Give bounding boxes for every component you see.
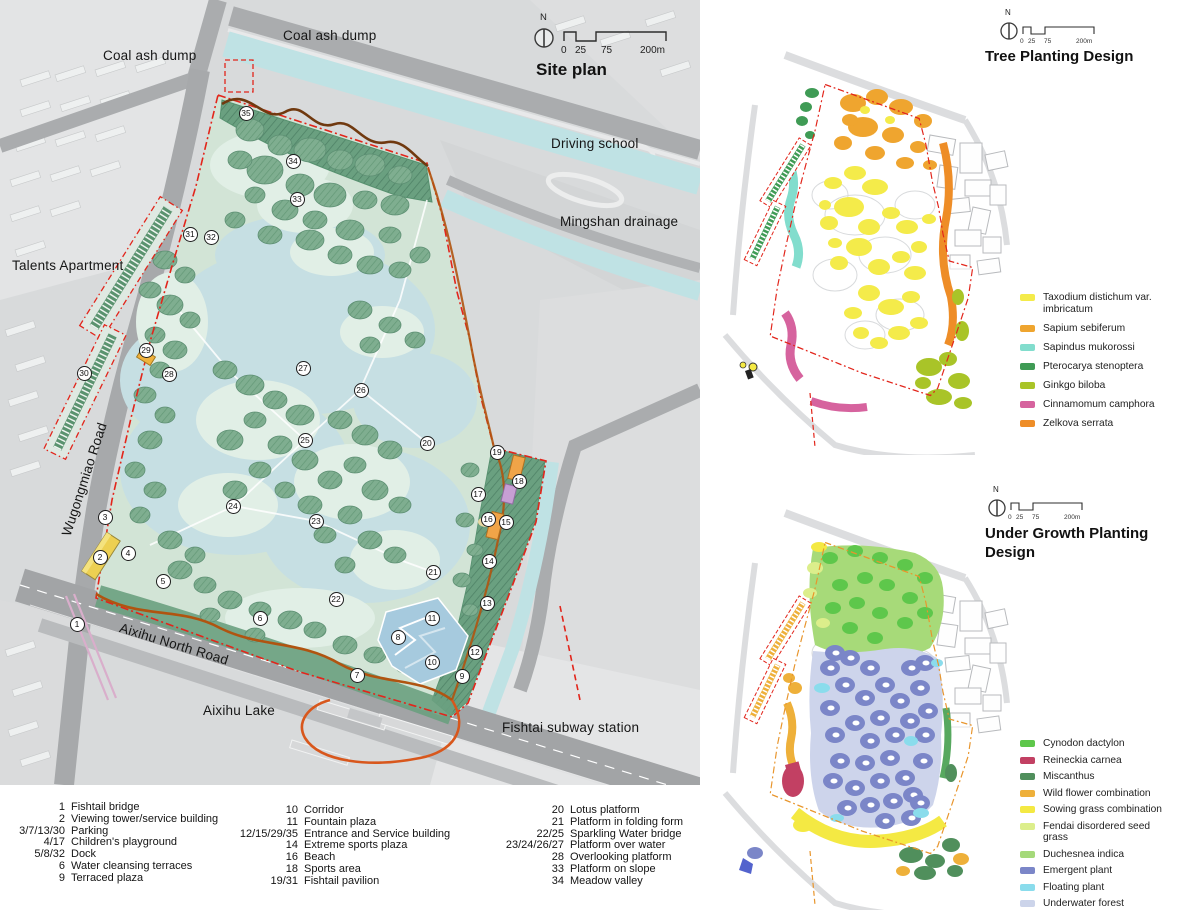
tree-planting-legend: Taxodium distichum var. imbricatumSapium…: [1020, 292, 1175, 437]
scale-tick: 75: [1032, 514, 1039, 521]
tree-planting-map: [715, 15, 1020, 455]
legend-swatch: [1020, 900, 1035, 907]
legend-label: Meadow valley: [570, 876, 683, 888]
planting-design-column: N 0 25 75 200m Tree Planting Design Taxo…: [705, 0, 1177, 910]
legend-item: Pterocarya stenoptera: [1020, 361, 1175, 373]
legend-item: Miscanthus: [1020, 771, 1175, 783]
numbered-legend: 1Fishtail bridge2Viewing tower/service b…: [0, 797, 700, 910]
scale-tick: 75: [1044, 38, 1051, 45]
plan-marker-21: 21: [426, 565, 441, 580]
scale-tick: 200m: [1076, 38, 1092, 45]
legend-item: Sowing grass combination: [1020, 804, 1175, 816]
legend-swatch: [1020, 806, 1035, 813]
legend-item: Cynodon dactylon: [1020, 738, 1175, 750]
plan-marker-27: 27: [296, 361, 311, 376]
plan-marker-18: 18: [512, 474, 527, 489]
plan-marker-10: 10: [425, 655, 440, 670]
legend-item: Sapindus mukorossi: [1020, 342, 1175, 354]
plan-marker-5: 5: [156, 574, 171, 589]
site-plan-map: [0, 0, 700, 785]
map-label-coal-ash-dump-left: Coal ash dump: [103, 48, 196, 63]
plan-marker-9: 9: [455, 669, 470, 684]
tree-planting-title: Tree Planting Design: [985, 47, 1133, 66]
legend-species-label: Wild flower combination: [1043, 788, 1151, 800]
plan-marker-4: 4: [121, 546, 136, 561]
legend-column-3: 20Lotus platform21Platform in folding fo…: [492, 805, 683, 888]
map-label-mingshan-drainage: Mingshan drainage: [560, 214, 678, 229]
plan-marker-3: 3: [98, 510, 113, 525]
plan-marker-17: 17: [471, 487, 486, 502]
scale-tick: 200m: [640, 45, 665, 56]
legend-number: 9: [18, 873, 65, 885]
plan-marker-20: 20: [420, 436, 435, 451]
legend-column-1: 1Fishtail bridge2Viewing tower/service b…: [18, 802, 218, 885]
legend-label: Platform in folding form: [570, 817, 683, 829]
plan-marker-15: 15: [499, 515, 514, 530]
legend-swatch: [1020, 401, 1035, 408]
plan-marker-14: 14: [482, 554, 497, 569]
plan-marker-16: 16: [481, 512, 496, 527]
legend-number: 5/8/32: [18, 849, 65, 861]
legend-swatch: [1020, 867, 1035, 874]
scale-tick: 75: [601, 45, 612, 56]
plan-marker-29: 29: [139, 343, 154, 358]
north-label: N: [1005, 8, 1011, 17]
legend-species-label: Miscanthus: [1043, 771, 1095, 783]
legend-species-label: Emergent plant: [1043, 865, 1112, 877]
north-label: N: [540, 12, 547, 23]
legend-swatch: [1020, 363, 1035, 370]
legend-label: Viewing tower/service building: [71, 814, 218, 826]
legend-species-label: Sowing grass combination: [1043, 804, 1162, 816]
scale-tick: 25: [1016, 514, 1023, 521]
legend-swatch: [1020, 740, 1035, 747]
map-label-fishtai-subway-station: Fishtai subway station: [502, 720, 639, 735]
legend-swatch: [1020, 382, 1035, 389]
plan-marker-35: 35: [239, 106, 254, 121]
legend-swatch: [1020, 884, 1035, 891]
poster-canvas: N 0 25 75 200m Site plan Coal ash dumpCo…: [0, 0, 1177, 910]
legend-swatch: [1020, 851, 1035, 858]
legend-item: Underwater forest: [1020, 898, 1175, 910]
plan-marker-22: 22: [329, 592, 344, 607]
scale-tick: 200m: [1064, 514, 1080, 521]
legend-species-label: Sapium sebiferum: [1043, 323, 1125, 335]
legend-swatch: [1020, 757, 1035, 764]
plan-marker-28: 28: [162, 367, 177, 382]
legend-item: Cinnamomum camphora: [1020, 399, 1175, 411]
legend-species-label: Fendai disordered seed grass: [1043, 821, 1175, 844]
site-plan-title: Site plan: [536, 60, 607, 80]
scale-tick: 25: [1028, 38, 1035, 45]
plan-marker-33: 33: [290, 192, 305, 207]
scale-bar: [563, 28, 669, 44]
plan-marker-2: 2: [93, 550, 108, 565]
legend-item: Duchesnea indica: [1020, 849, 1175, 861]
legend-swatch: [1020, 823, 1035, 830]
legend-item: Wild flower combination: [1020, 788, 1175, 800]
north-arrow: [532, 24, 556, 50]
legend-number: 18: [228, 864, 298, 876]
plan-marker-7: 7: [350, 668, 365, 683]
map-label-driving-school: Driving school: [551, 136, 639, 151]
scale-tick: 0: [561, 45, 567, 56]
legend-item: Sapium sebiferum: [1020, 323, 1175, 335]
legend-label: Terraced plaza: [71, 873, 218, 885]
plan-marker-26: 26: [354, 383, 369, 398]
under-growth-legend: Cynodon dactylonReineckia carneaMiscanth…: [1020, 738, 1175, 910]
legend-swatch: [1020, 344, 1035, 351]
plan-marker-13: 13: [480, 596, 495, 611]
legend-number: 1: [18, 802, 65, 814]
legend-number: 21: [492, 817, 564, 829]
legend-label: Platform on slope: [570, 864, 683, 876]
legend-species-label: Sapindus mukorossi: [1043, 342, 1135, 354]
legend-species-label: Pterocarya stenoptera: [1043, 361, 1143, 373]
legend-number: 19/31: [228, 876, 298, 888]
legend-label: Fountain plaza: [304, 817, 450, 829]
legend-number: 34: [492, 876, 564, 888]
legend-number: 33: [492, 864, 564, 876]
north-label: N: [993, 485, 999, 494]
legend-swatch: [1020, 294, 1035, 301]
north-arrow: [998, 18, 1020, 42]
plan-marker-34: 34: [286, 154, 301, 169]
legend-swatch: [1020, 773, 1035, 780]
legend-item: Ginkgo biloba: [1020, 380, 1175, 392]
legend-column-2: 10Corridor11Fountain plaza12/15/29/35Ent…: [228, 805, 450, 888]
plan-marker-11: 11: [425, 611, 440, 626]
legend-number: 2: [18, 814, 65, 826]
legend-species-label: Ginkgo biloba: [1043, 380, 1105, 392]
legend-species-label: Taxodium distichum var. imbricatum: [1043, 292, 1175, 315]
plan-marker-24: 24: [226, 499, 241, 514]
north-arrow: [986, 495, 1008, 519]
legend-species-label: Cynodon dactylon: [1043, 738, 1125, 750]
legend-item: Fendai disordered seed grass: [1020, 821, 1175, 844]
scale-tick: 0: [1008, 514, 1012, 521]
legend-label: Fishtail pavilion: [304, 876, 450, 888]
legend-species-label: Floating plant: [1043, 882, 1104, 894]
legend-label: Water cleansing terraces: [71, 861, 218, 873]
scale-tick: 25: [575, 45, 586, 56]
legend-label: Sports area: [304, 864, 450, 876]
under-growth-map: [715, 473, 1020, 910]
legend-number: 11: [228, 817, 298, 829]
plan-marker-19: 19: [490, 445, 505, 460]
legend-item: Floating plant: [1020, 882, 1175, 894]
legend-species-label: Cinnamomum camphora: [1043, 399, 1155, 411]
scale-bar: [1022, 24, 1096, 36]
legend-swatch: [1020, 790, 1035, 797]
site-plan-panel: N 0 25 75 200m Site plan Coal ash dumpCo…: [0, 0, 700, 785]
plan-marker-31: 31: [183, 227, 198, 242]
plan-marker-12: 12: [468, 645, 483, 660]
plan-marker-6: 6: [253, 611, 268, 626]
map-label-talents-apartment: Talents Apartment: [12, 258, 123, 273]
plan-marker-32: 32: [204, 230, 219, 245]
plan-marker-30: 30: [77, 366, 92, 381]
plan-marker-1: 1: [70, 617, 85, 632]
legend-species-label: Duchesnea indica: [1043, 849, 1124, 861]
under-growth-title: Under Growth Planting Design: [985, 524, 1170, 562]
legend-item: Zelkova serrata: [1020, 418, 1175, 430]
scale-tick: 0: [1020, 38, 1024, 45]
plan-marker-23: 23: [309, 514, 324, 529]
legend-item: Taxodium distichum var. imbricatum: [1020, 292, 1175, 315]
map-label-coal-ash-dump-top: Coal ash dump: [283, 28, 376, 43]
legend-swatch: [1020, 420, 1035, 427]
plan-marker-25: 25: [298, 433, 313, 448]
plan-marker-8: 8: [391, 630, 406, 645]
legend-species-label: Zelkova serrata: [1043, 418, 1113, 430]
legend-item: Emergent plant: [1020, 865, 1175, 877]
map-label-aixihu-lake: Aixihu Lake: [203, 703, 275, 718]
scale-bar: [1010, 500, 1084, 512]
legend-species-label: Reineckia carnea: [1043, 755, 1122, 767]
legend-swatch: [1020, 325, 1035, 332]
legend-number: 6: [18, 861, 65, 873]
legend-species-label: Underwater forest: [1043, 898, 1124, 910]
legend-item: Reineckia carnea: [1020, 755, 1175, 767]
